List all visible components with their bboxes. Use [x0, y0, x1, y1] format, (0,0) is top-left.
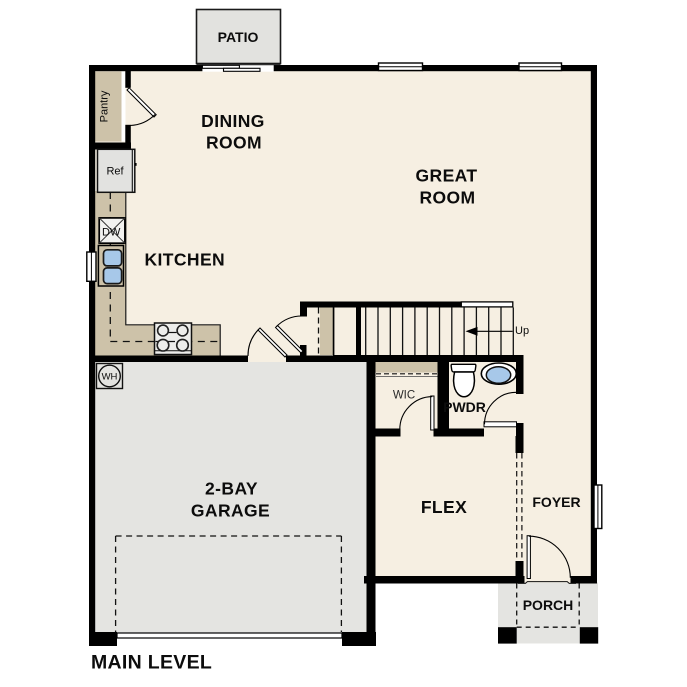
svg-text:FOYER: FOYER — [532, 494, 580, 510]
svg-text:PORCH: PORCH — [523, 597, 574, 613]
svg-text:2-BAY: 2-BAY — [205, 479, 258, 499]
svg-text:WIC: WIC — [393, 390, 415, 402]
svg-text:GARAGE: GARAGE — [191, 500, 270, 520]
svg-text:ROOM: ROOM — [206, 133, 262, 153]
svg-text:PWDR: PWDR — [443, 399, 486, 415]
svg-text:Up: Up — [515, 325, 529, 337]
svg-text:MAIN LEVEL: MAIN LEVEL — [91, 652, 212, 674]
svg-text:DINING: DINING — [201, 111, 265, 131]
svg-text:Ref: Ref — [106, 166, 124, 178]
svg-text:PATIO: PATIO — [218, 29, 259, 45]
svg-text:FLEX: FLEX — [421, 497, 467, 517]
svg-text:ROOM: ROOM — [419, 187, 475, 207]
svg-text:DW: DW — [102, 227, 121, 239]
svg-text:GREAT: GREAT — [416, 166, 478, 186]
svg-text:KITCHEN: KITCHEN — [145, 249, 226, 269]
svg-text:WH: WH — [102, 372, 118, 383]
svg-text:Pantry: Pantry — [99, 90, 111, 122]
